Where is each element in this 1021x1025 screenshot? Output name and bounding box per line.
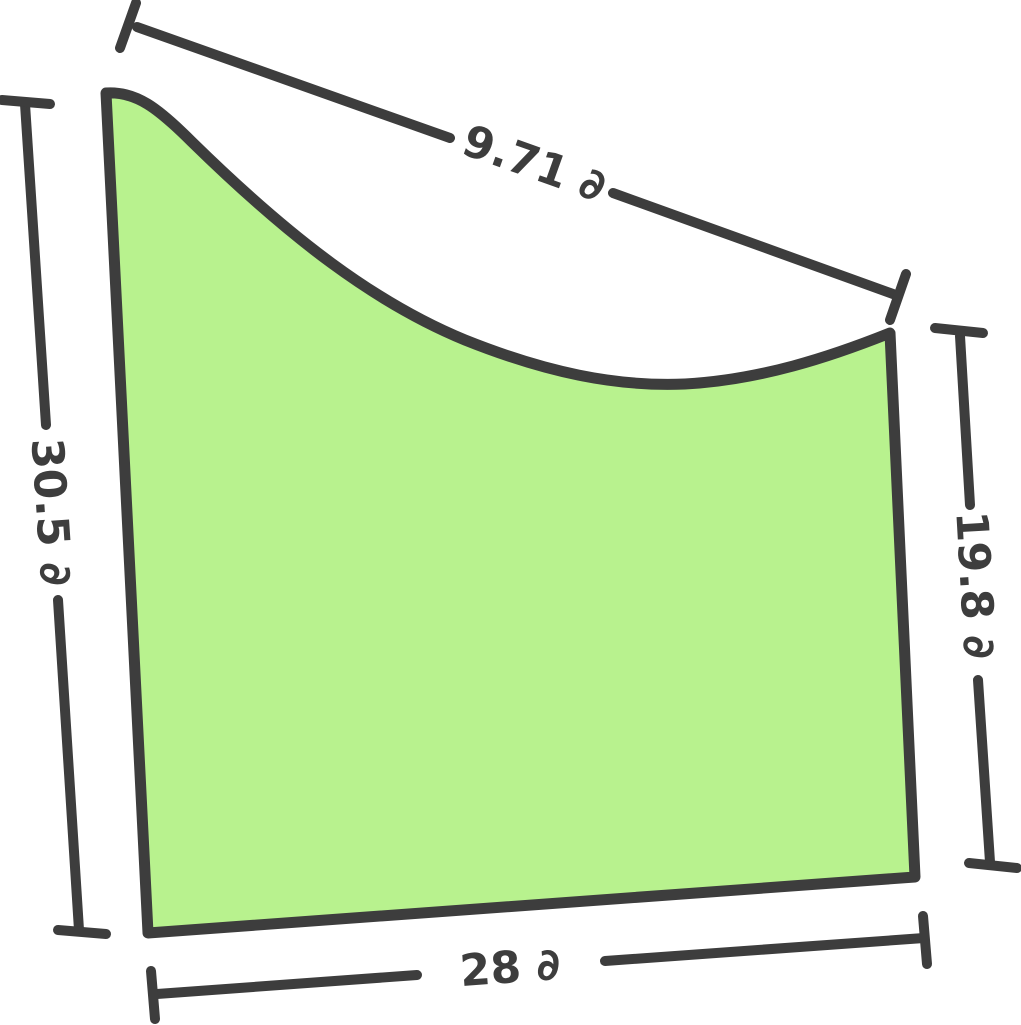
right-dimension-tick-end bbox=[969, 863, 1017, 868]
bottom-dimension-label: 28 ∂ bbox=[458, 939, 562, 997]
top-dimension-label: 9.71 ∂ bbox=[456, 115, 612, 213]
geometry-figure: 9.71 ∂ 30.5 ∂ 19.8 ∂ 28 ∂ bbox=[0, 0, 1021, 1025]
left-dimension-line-segment-end bbox=[58, 600, 79, 930]
left-dimension-line-segment-start bbox=[25, 104, 46, 425]
right-dimension-label: 19.8 ∂ bbox=[945, 510, 1004, 661]
right-dimension-line-segment-start bbox=[960, 336, 970, 505]
figure-canvas: 9.71 ∂ 30.5 ∂ 19.8 ∂ 28 ∂ bbox=[0, 0, 1021, 1025]
left-dimension-tick-end bbox=[58, 930, 106, 934]
bottom-dimension-tick-end bbox=[923, 916, 927, 964]
right-dimension-line-segment-end bbox=[978, 680, 990, 862]
left-dimension: 30.5 ∂ bbox=[2, 100, 106, 934]
top-dimension-line-segment-end bbox=[613, 193, 893, 294]
left-dimension-tick-start bbox=[2, 100, 50, 104]
shaded-region bbox=[106, 93, 915, 933]
bottom-dimension: 28 ∂ bbox=[151, 916, 927, 1019]
right-dimension: 19.8 ∂ bbox=[935, 328, 1017, 868]
top-dimension-line-segment-start bbox=[137, 27, 450, 138]
right-dimension-tick-start bbox=[935, 328, 983, 333]
bottom-dimension-tick-start bbox=[151, 971, 155, 1019]
bottom-dimension-line-segment-end bbox=[605, 938, 924, 961]
left-dimension-label: 30.5 ∂ bbox=[21, 437, 82, 588]
bottom-dimension-line-segment-start bbox=[157, 975, 417, 994]
